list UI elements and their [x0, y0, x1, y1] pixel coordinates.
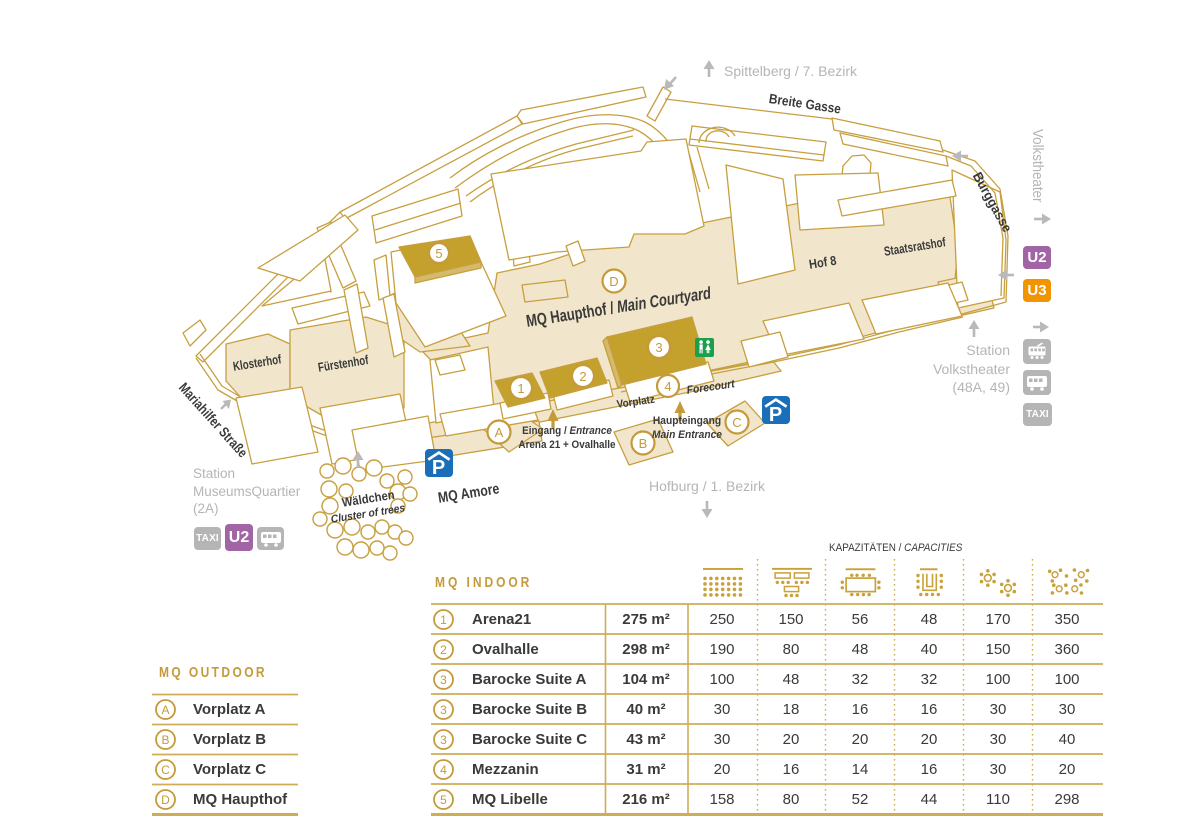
svg-text:1: 1 [440, 613, 447, 627]
svg-text:3: 3 [440, 673, 447, 687]
svg-text:3: 3 [440, 703, 447, 717]
svg-text:5: 5 [440, 793, 447, 807]
svg-text:3: 3 [440, 733, 447, 747]
svg-text:4: 4 [440, 763, 447, 777]
svg-text:2: 2 [440, 643, 447, 657]
